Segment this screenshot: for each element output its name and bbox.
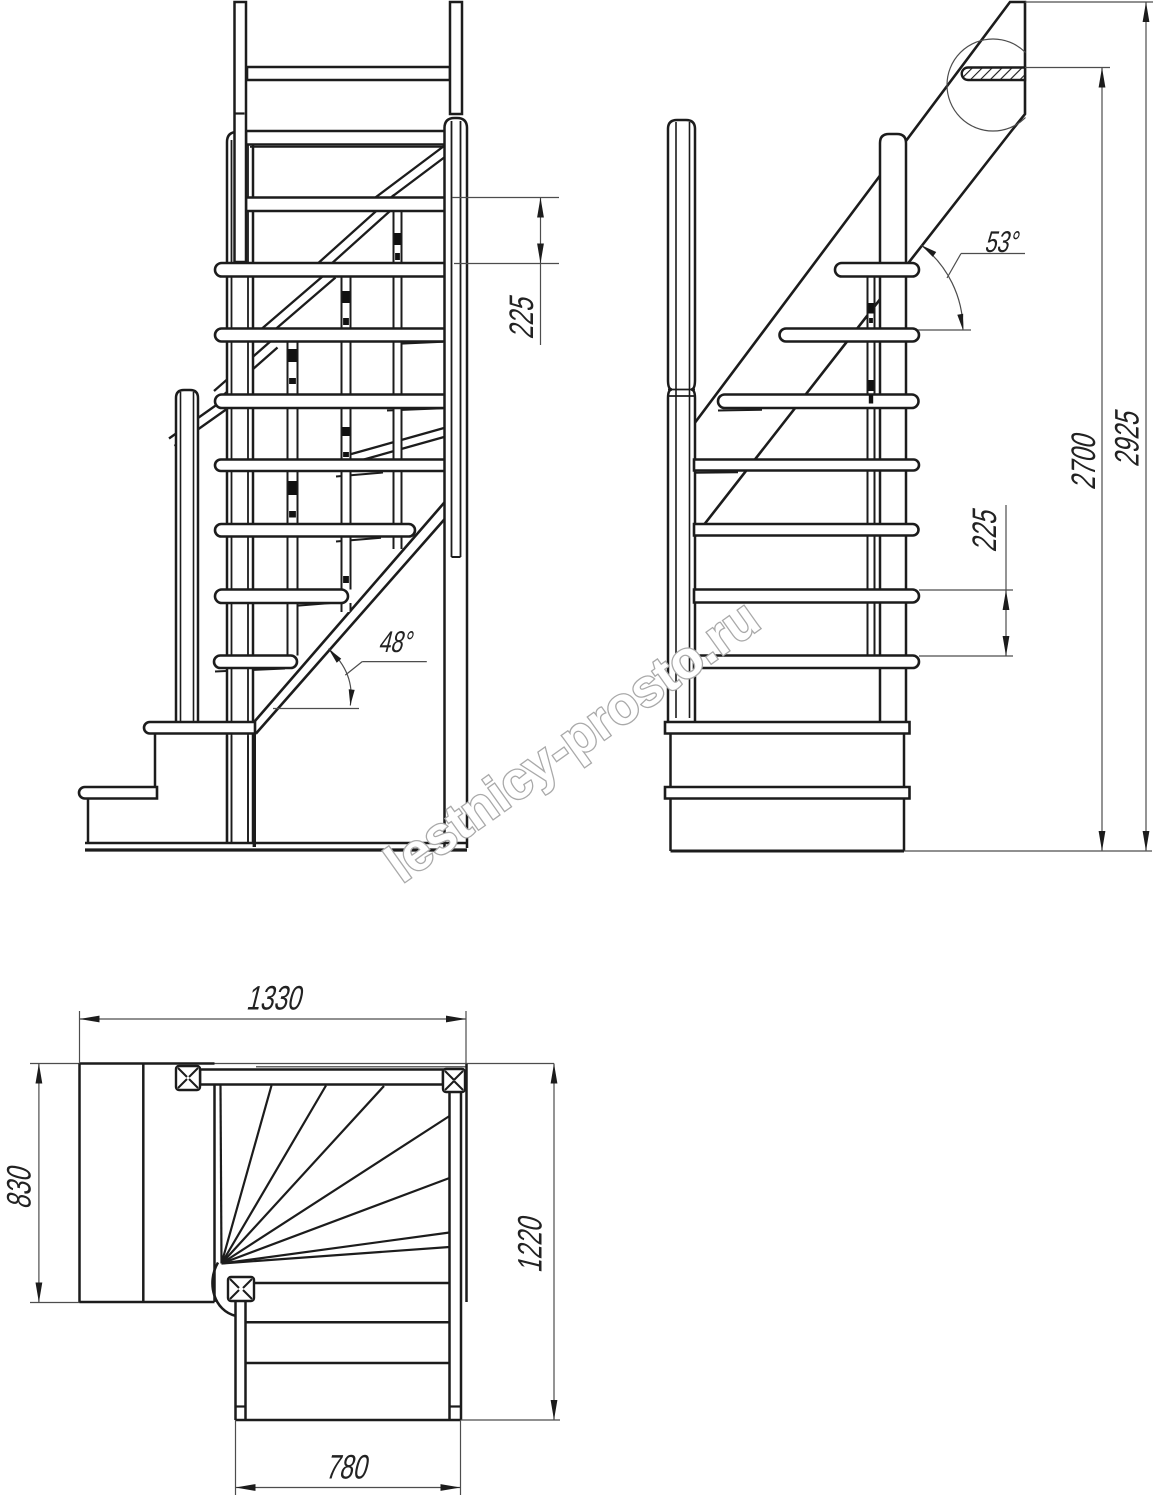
svg-text:2700: 2700 — [1066, 429, 1103, 493]
svg-text:2925: 2925 — [1109, 406, 1146, 470]
svg-text:1330: 1330 — [244, 980, 308, 1017]
svg-text:1220: 1220 — [512, 1212, 549, 1276]
